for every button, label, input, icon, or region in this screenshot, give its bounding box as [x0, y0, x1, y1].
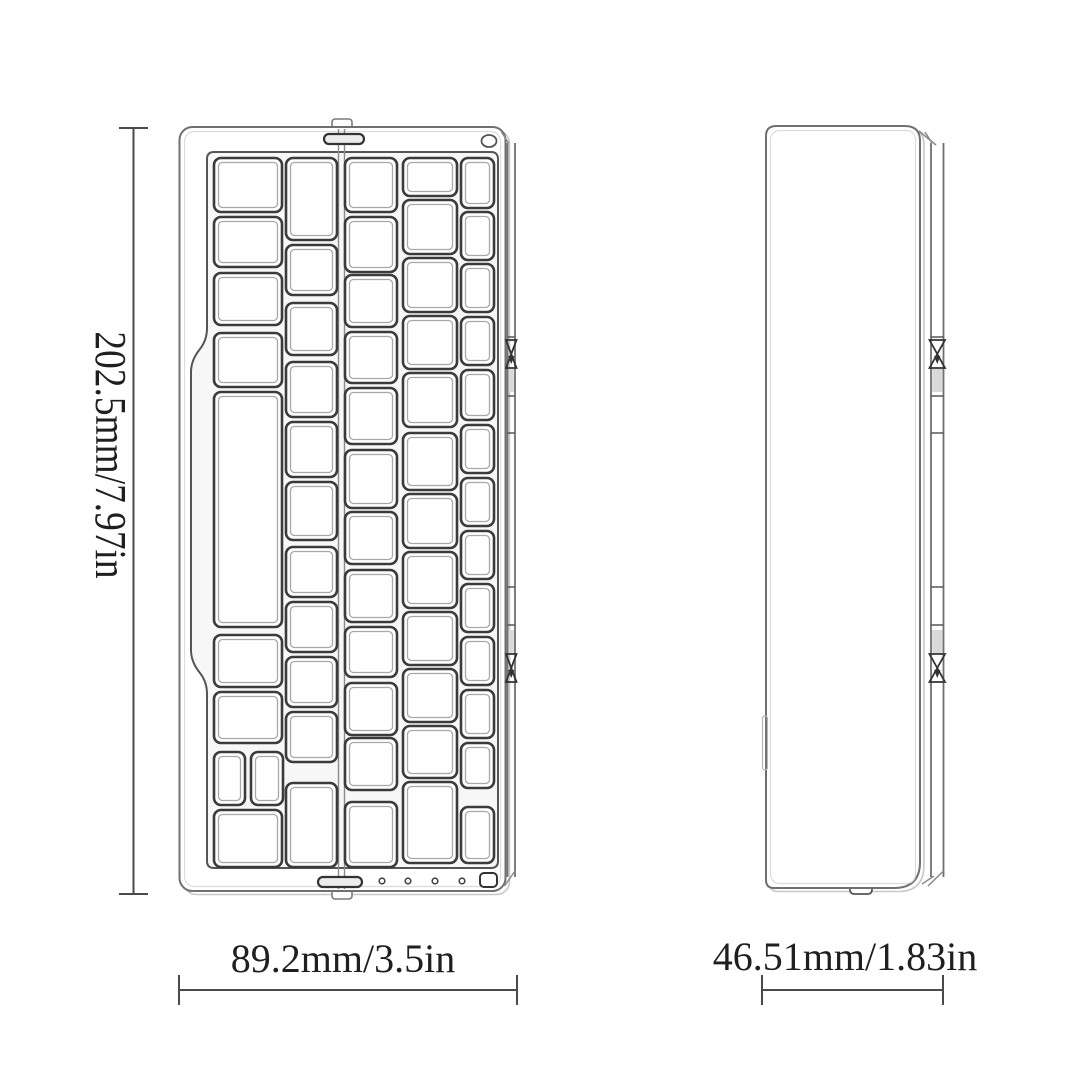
led-indicator — [405, 878, 411, 884]
keycap — [286, 602, 337, 652]
keycap — [286, 303, 337, 355]
keycap — [286, 422, 337, 477]
keycap — [345, 217, 397, 272]
side-body-outline — [766, 126, 920, 888]
keycap — [345, 158, 397, 212]
keycap — [214, 392, 282, 627]
keycap — [214, 273, 282, 325]
hinge-pad — [509, 630, 514, 653]
height-dimension-label: 202.5mm/7.97in — [86, 331, 134, 578]
keycap — [345, 570, 397, 622]
keycap — [345, 627, 397, 677]
keycap — [286, 547, 337, 597]
keycap — [286, 245, 337, 295]
depth-dimension-label: 46.51mm/1.83in — [713, 934, 977, 979]
keycap — [286, 783, 337, 867]
keycap — [345, 683, 397, 735]
keycap — [403, 258, 457, 312]
keycap — [403, 552, 457, 608]
keyboard-top-view — [180, 119, 510, 899]
hinge-pad — [932, 630, 942, 653]
keycap — [403, 782, 457, 863]
power-button — [480, 873, 497, 887]
hinge-pad — [932, 369, 942, 392]
hinge-pivot-pin — [934, 670, 940, 678]
diagram-canvas: 202.5mm/7.97in 89.2mm/3.5in 46.51mm/1.83… — [0, 0, 1080, 1080]
keycap — [345, 388, 397, 444]
keycap — [286, 657, 337, 707]
keycap — [403, 612, 457, 665]
hinge-chamfer — [919, 131, 936, 145]
keycap — [345, 332, 397, 383]
keycap — [403, 200, 457, 254]
keycap — [403, 316, 457, 369]
keycap — [286, 712, 337, 762]
keycap — [214, 333, 282, 387]
keycap — [403, 726, 457, 778]
top-hinge-tab — [324, 134, 364, 144]
keycap — [214, 810, 282, 867]
keycap — [345, 450, 397, 508]
hinge-pad — [509, 369, 514, 392]
keycap — [214, 692, 282, 743]
keycap — [286, 482, 337, 540]
led-indicator — [459, 878, 465, 884]
latch-button — [482, 135, 497, 147]
keycap-grid — [214, 158, 494, 867]
bottom-hinge-tab — [318, 877, 362, 887]
hinge-pivot-pin — [934, 356, 940, 364]
led-indicator — [379, 878, 385, 884]
keycap — [345, 802, 397, 867]
hinge-strip — [925, 132, 945, 886]
keycap — [403, 433, 457, 490]
width-dimension-label: 89.2mm/3.5in — [231, 936, 455, 981]
keycap — [345, 738, 397, 790]
keycap — [345, 275, 397, 327]
keycap — [403, 669, 457, 722]
keycap — [214, 158, 282, 212]
led-indicator — [432, 878, 438, 884]
keycap — [345, 512, 397, 564]
keycap — [403, 494, 457, 548]
keycap — [214, 635, 282, 687]
keyboard-side-view — [763, 126, 937, 894]
keycap — [403, 158, 457, 196]
keycap — [214, 217, 282, 267]
keycap — [286, 362, 337, 417]
keycap — [286, 158, 337, 240]
keycap — [403, 373, 457, 427]
